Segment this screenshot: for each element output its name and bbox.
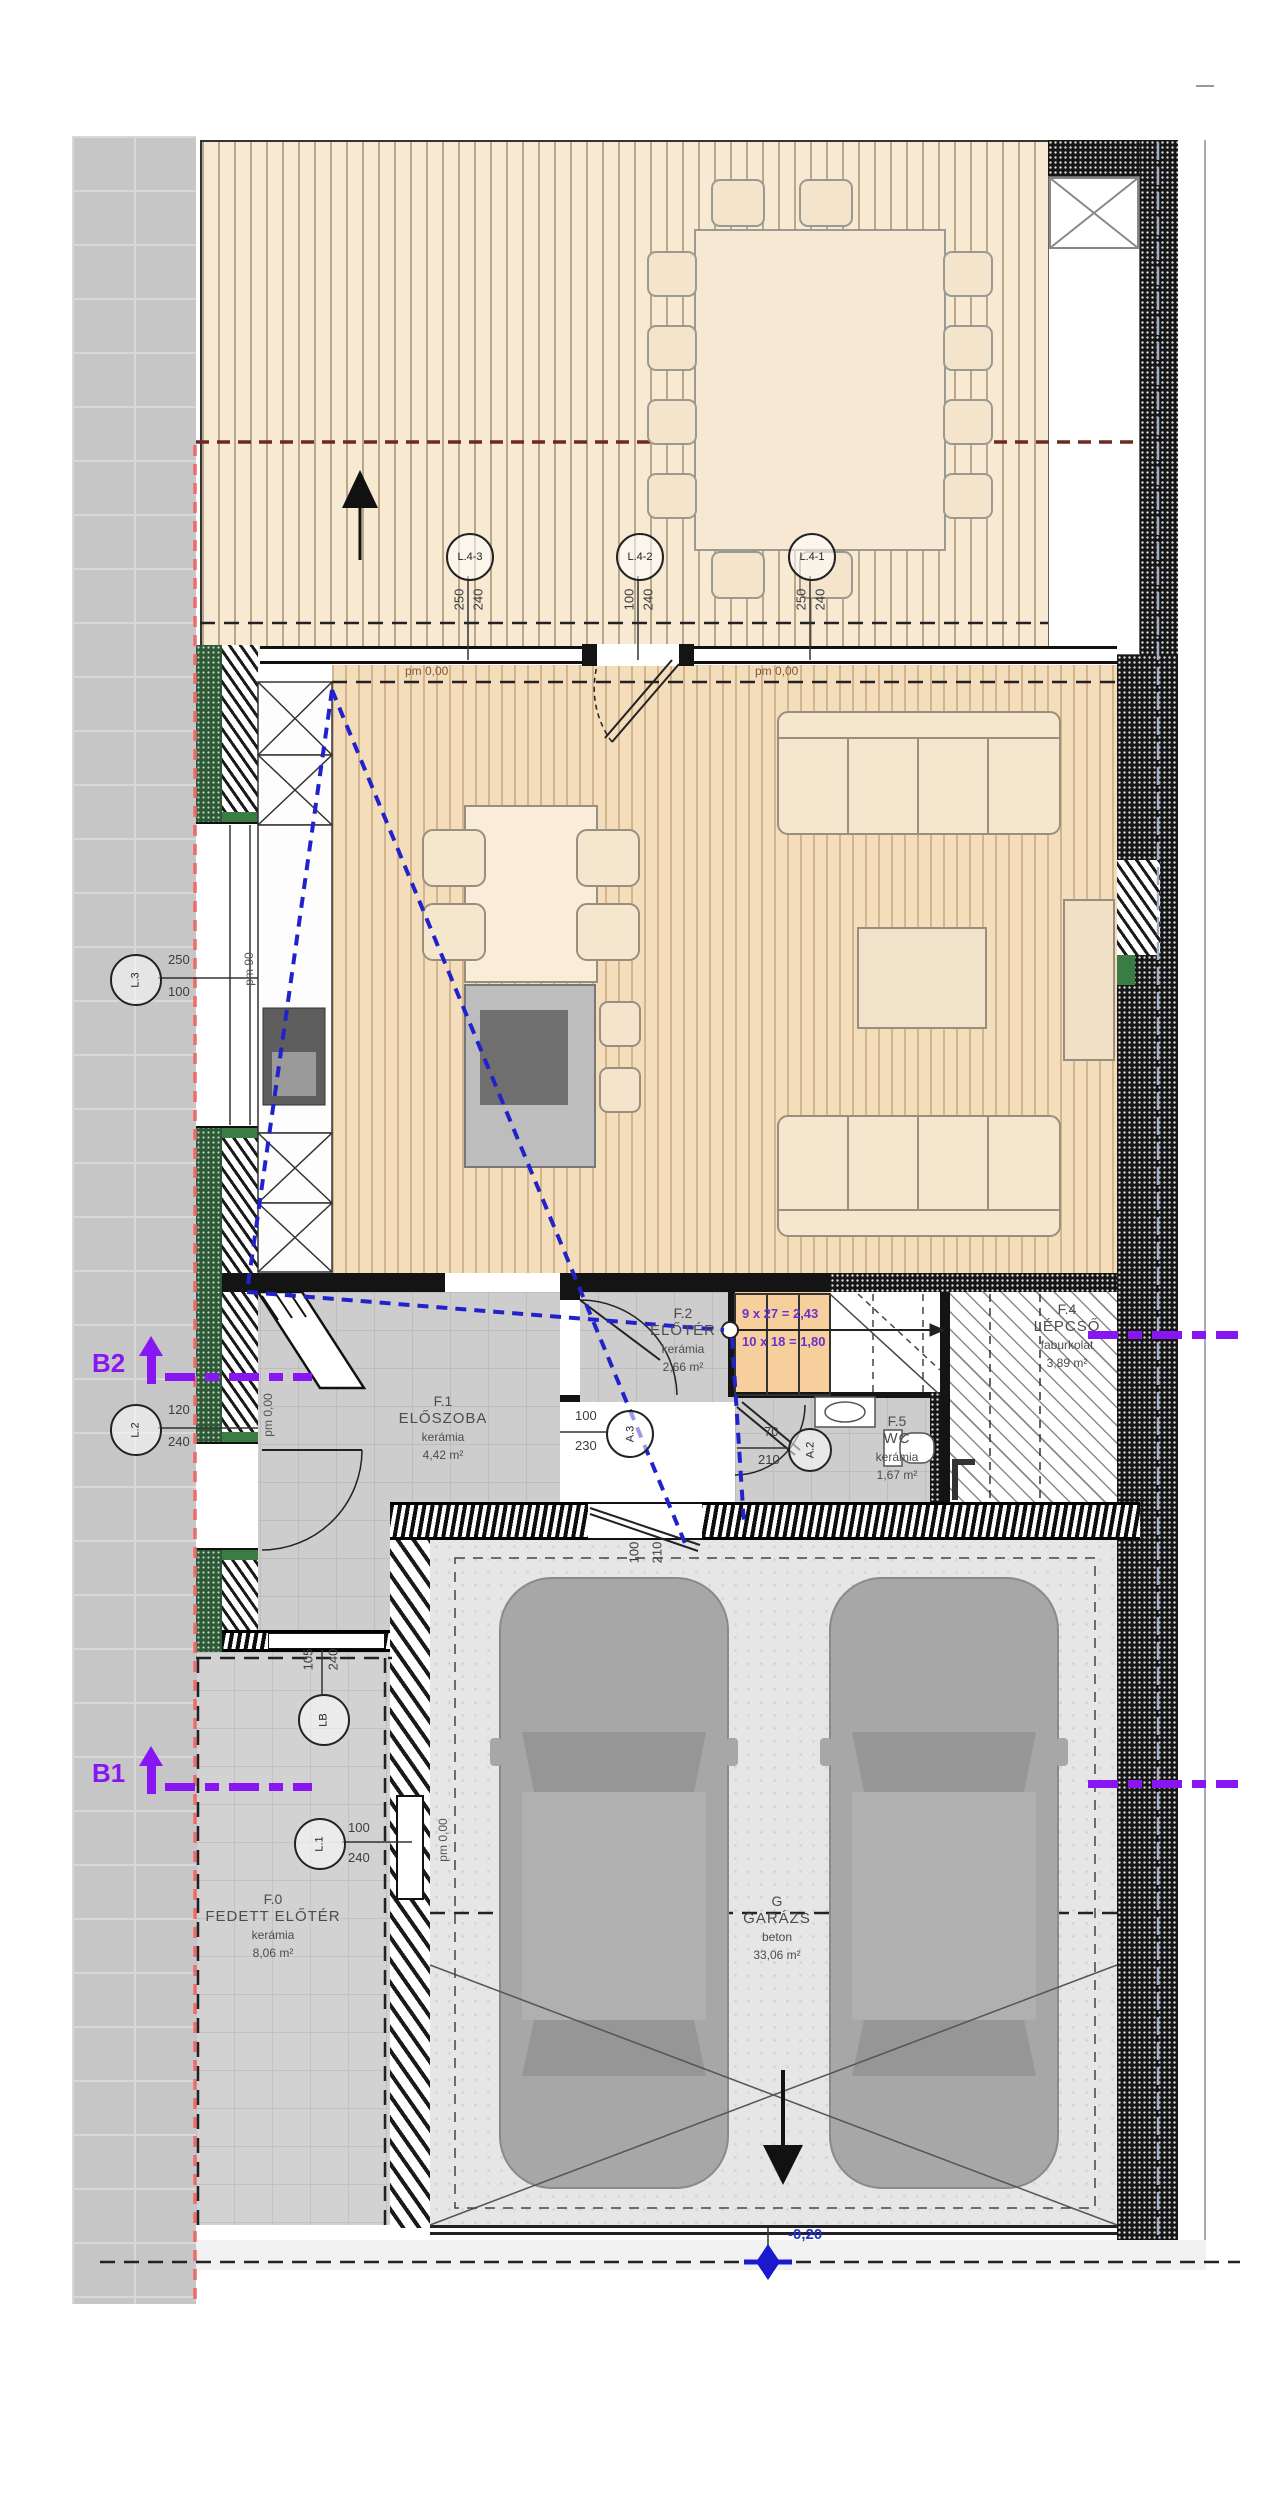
north-arrow-icon [342,470,378,560]
sofa-bottom [778,1116,1060,1236]
dim-l43-w: 250 [452,575,467,625]
window-tag-l2: L.2 [110,1404,162,1456]
window-tag-l3: L.3 [110,954,162,1006]
console-cabinet [1064,900,1114,1060]
exit-arrow-icon [763,2070,803,2185]
room-label-f5: F.5 WC kerámia 1,67 m² [817,1412,977,1484]
section-arrow-b1 [139,1746,163,1766]
dim-l41-w: 250 [794,575,809,625]
section-arrow-b2 [139,1336,163,1356]
dim-l1-h: 240 [348,1850,370,1865]
window-tag-lb: LB [298,1694,350,1746]
entry-door [262,1450,362,1550]
dim-garage-door-h: 210 [650,1528,665,1578]
terrace-door [594,660,679,742]
dim-lb-h: 240 [326,1635,341,1685]
dim-l42-h: 240 [641,575,656,625]
stair-upper-cut [830,1294,940,1395]
floor-plan-canvas: L.4-3 L.4-2 L.4-1 250 240 100 240 250 24… [0,0,1280,2495]
fireplace-unit [465,985,640,1167]
car-right [820,1578,1068,2188]
level-living: pm 0,00 [755,664,798,678]
level-diamond-icon [744,2244,792,2280]
level-terrace: pm 0,00 [405,664,448,678]
shaft-x-box [1050,178,1138,248]
coffee-table [858,928,986,1028]
dim-a3-h: 230 [575,1438,597,1453]
section-label-b2: B2 [92,1348,125,1379]
dim-l3-w: 250 [168,952,190,967]
dim-l2-h: 240 [168,1434,190,1449]
dim-l3-h: 100 [168,984,190,999]
level-driveway: -0,20 [788,2226,822,2243]
level-garage: pm 0,00 [436,1810,450,1870]
dim-l1-w: 100 [348,1820,370,1835]
level-hall: pm 0,00 [261,1385,275,1445]
plan-linework [0,0,1280,2495]
dining-set [423,806,639,982]
door-tag-l1: L.1 [294,1818,346,1870]
dim-garage-door-w: 100 [627,1528,642,1578]
level-kitchen: pm 90 [242,939,256,999]
dim-a2-w: 70 [764,1424,778,1439]
garage-inner-door-leaf [590,1508,700,1551]
sofa-top [778,712,1060,834]
dim-a3-w: 100 [575,1408,597,1423]
dim-a2-h: 210 [758,1452,780,1467]
room-label-f4: F.4 LÉPCSŐ faburkolat 3,89 m² [987,1300,1147,1372]
door-tag-a3: A.3 [606,1410,654,1458]
room-label-f0: F.0 FEDETT ELŐTÉR kerámia 8,06 m² [193,1890,353,1962]
section-arrow-b2-stem [147,1354,156,1384]
section-arrow-b1-stem [147,1764,156,1794]
room-label-f2: F.2 ELŐTÉR kerámia 2,66 m² [603,1304,763,1376]
dim-l41-h: 240 [813,575,828,625]
room-label-f1: F.1 ELŐSZOBA kerámia 4,42 m² [363,1392,523,1464]
dim-l2-w: 120 [168,1402,190,1417]
dim-lb-w: 105 [301,1635,316,1685]
dim-l42-w: 100 [622,575,637,625]
dim-l43-h: 240 [471,575,486,625]
car-left [490,1578,738,2188]
room-label-g: G GARÁZS beton 33,06 m² [697,1892,857,1964]
section-label-b1: B1 [92,1758,125,1789]
